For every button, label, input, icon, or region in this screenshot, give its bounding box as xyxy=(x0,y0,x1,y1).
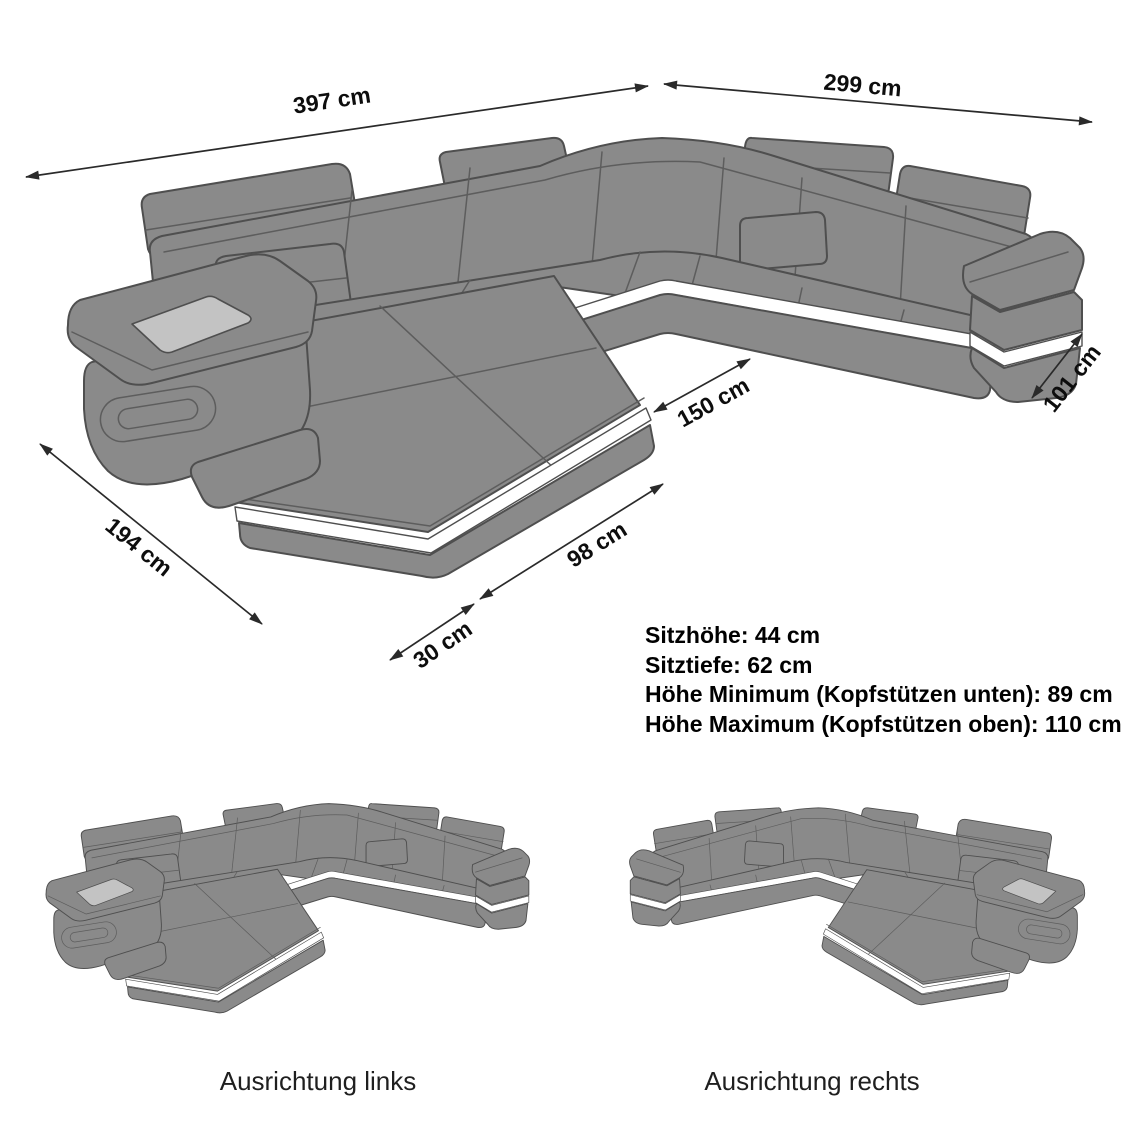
dimension-label-30: 30 cm xyxy=(408,615,476,673)
dimension-label-150: 150 cm xyxy=(673,372,754,433)
variant-caption-left: Ausrichtung links xyxy=(220,1066,417,1097)
variant-thumbnail-left xyxy=(46,804,530,1013)
spec-line-seat-height: Sitzhöhe: 44 cm xyxy=(645,621,1122,651)
variant-caption-right: Ausrichtung rechts xyxy=(704,1066,919,1097)
dimension-label-98: 98 cm xyxy=(562,516,631,573)
spec-block: Sitzhöhe: 44 cm Sitztiefe: 62 cm Höhe Mi… xyxy=(645,621,1122,739)
spec-line-height-max: Höhe Maximum (Kopfstützen oben): 110 cm xyxy=(645,710,1122,740)
sofa-dimension-diagram: 397 cm 299 cm 150 cm 101 cm 194 cm 30 cm… xyxy=(0,0,1134,1134)
spec-line-seat-depth: Sitztiefe: 62 cm xyxy=(645,651,1122,681)
spec-line-height-min: Höhe Minimum (Kopfstützen unten): 89 cm xyxy=(645,680,1122,710)
dimension-label-397: 397 cm xyxy=(291,82,372,119)
dimension-label-299: 299 cm xyxy=(823,69,903,102)
sofa-illustration-main xyxy=(68,138,1084,578)
variant-thumbnail-right xyxy=(630,808,1085,1005)
